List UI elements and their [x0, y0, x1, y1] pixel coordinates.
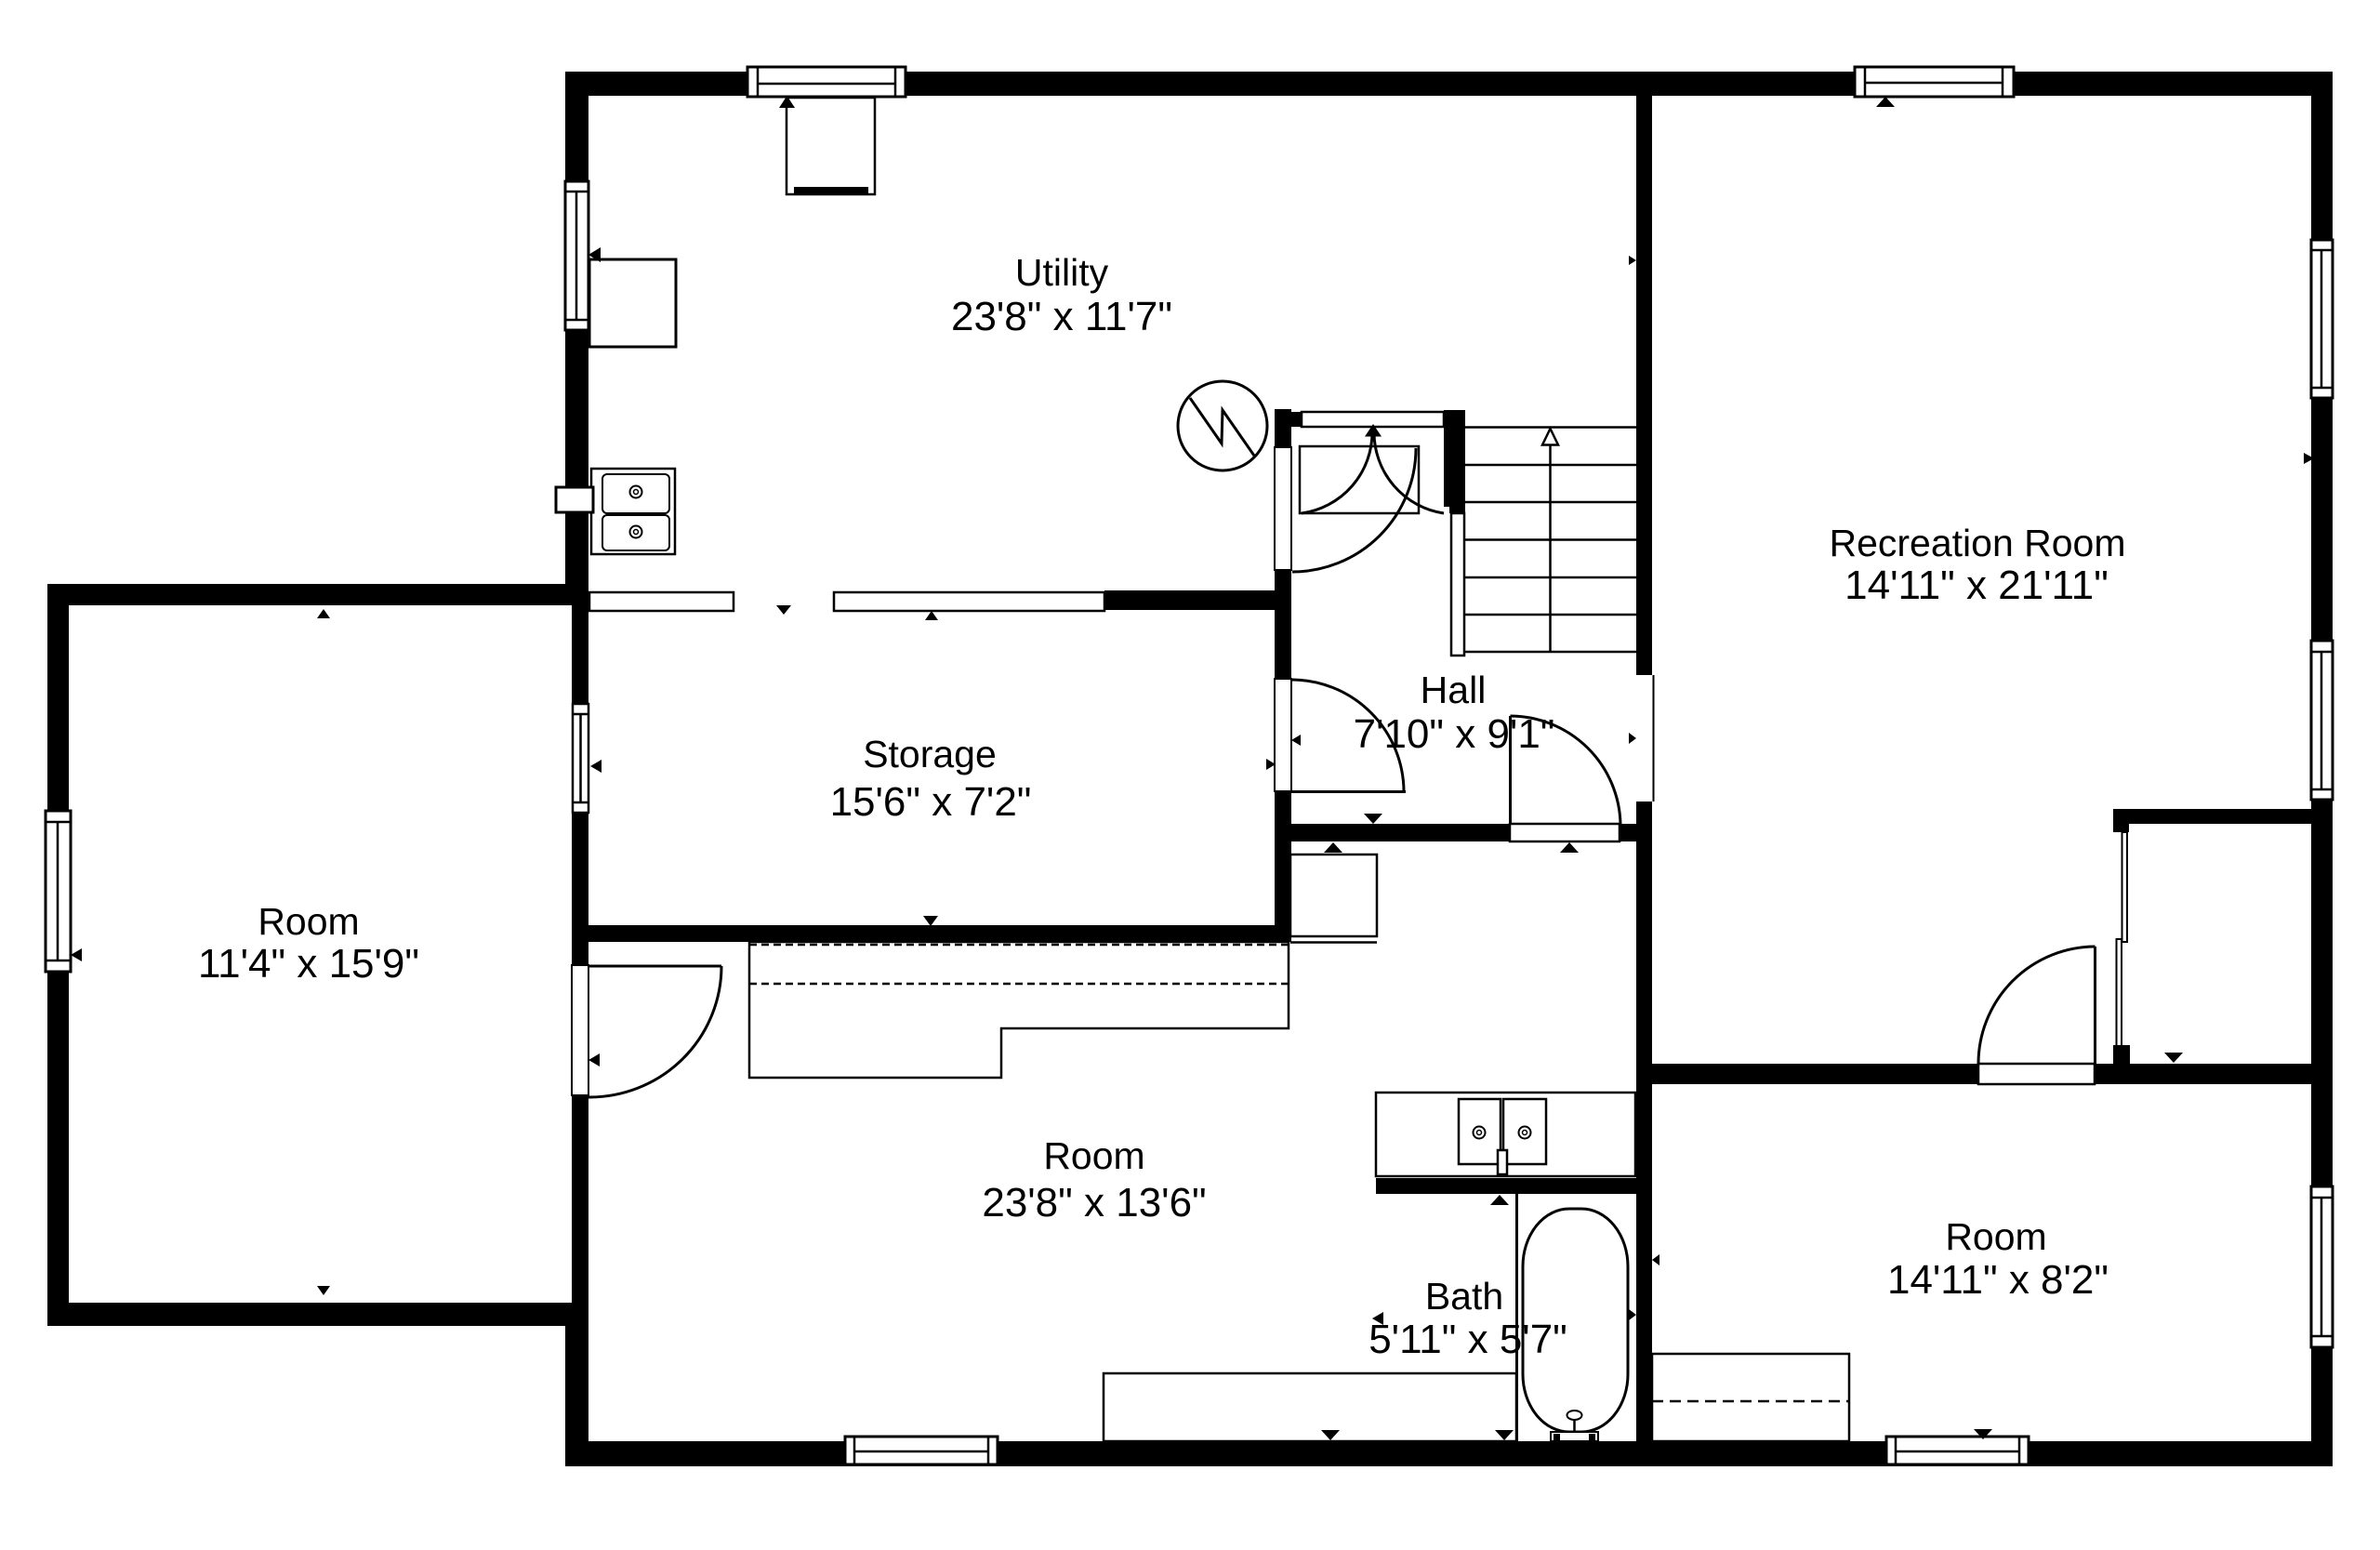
svg-text:23'8" x 13'6": 23'8" x 13'6" — [982, 1180, 1206, 1225]
svg-text:Hall: Hall — [1421, 669, 1487, 711]
svg-text:Utility: Utility — [1015, 251, 1109, 294]
svg-text:Room: Room — [1043, 1134, 1144, 1177]
svg-text:Storage: Storage — [863, 733, 997, 775]
svg-text:5'11" x 5'7": 5'11" x 5'7" — [1368, 1317, 1567, 1362]
svg-text:14'11" x 8'2": 14'11" x 8'2" — [1887, 1257, 2109, 1303]
svg-text:Recreation Room: Recreation Room — [1829, 522, 2125, 564]
svg-text:Bath: Bath — [1425, 1275, 1503, 1318]
svg-text:14'11" x 21'11": 14'11" x 21'11" — [1844, 563, 2109, 608]
svg-text:Room: Room — [1945, 1215, 2046, 1258]
svg-text:23'8" x 11'7": 23'8" x 11'7" — [951, 294, 1172, 339]
svg-text:15'6" x 7'2": 15'6" x 7'2" — [830, 779, 1032, 825]
svg-text:11'4" x 15'9": 11'4" x 15'9" — [198, 941, 419, 987]
svg-text:Room: Room — [258, 900, 359, 943]
svg-text:7'10" x 9'1": 7'10" x 9'1" — [1354, 711, 1555, 757]
